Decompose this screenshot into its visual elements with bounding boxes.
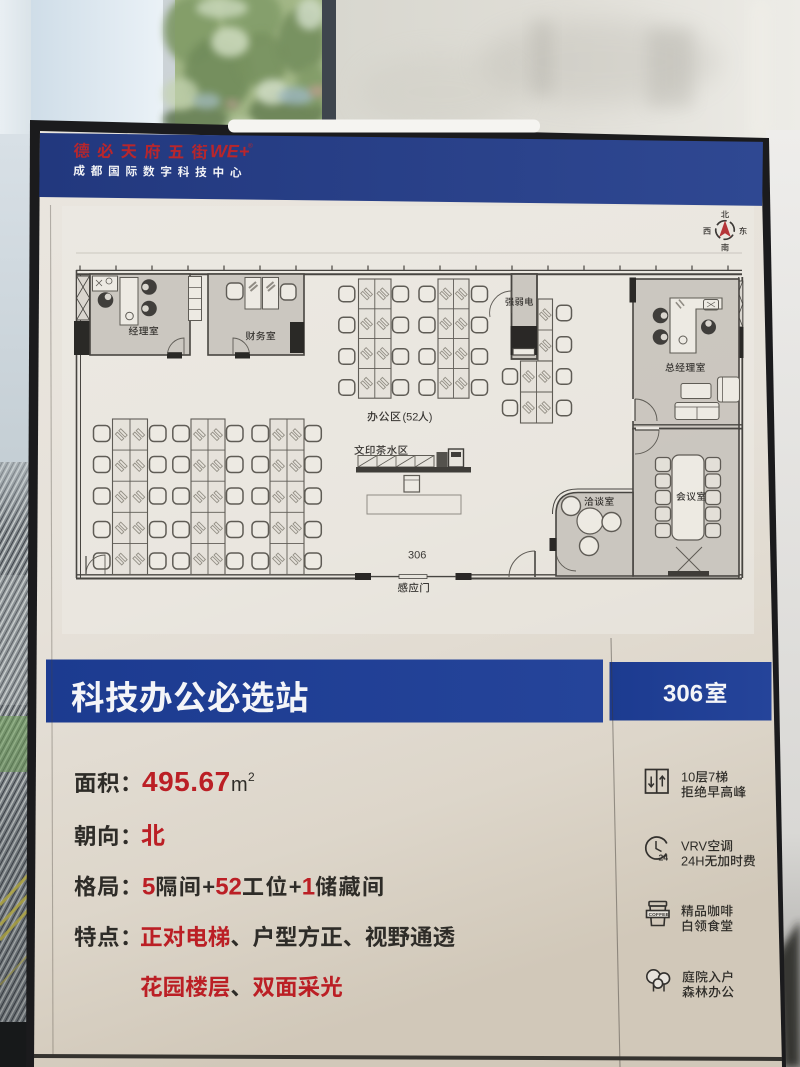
svg-text:+: +: [289, 875, 302, 900]
svg-text:WE+: WE+: [210, 141, 250, 161]
svg-text:(52: (52: [403, 412, 419, 424]
svg-text:1: 1: [302, 874, 315, 901]
svg-text:10: 10: [681, 770, 695, 785]
svg-text:m: m: [231, 774, 248, 796]
svg-text:): ): [429, 412, 433, 424]
svg-text:2: 2: [248, 770, 255, 784]
svg-text:VRV: VRV: [681, 839, 708, 854]
svg-text:7: 7: [708, 770, 715, 785]
svg-text:COFFEE: COFFEE: [649, 912, 669, 917]
svg-text:24H: 24H: [681, 854, 704, 869]
svg-text:5: 5: [142, 874, 155, 901]
svg-text:24: 24: [659, 853, 669, 863]
svg-text:52: 52: [215, 874, 242, 901]
svg-text:306: 306: [663, 681, 703, 708]
svg-text:495.67: 495.67: [142, 766, 231, 797]
svg-text:+: +: [202, 875, 215, 900]
svg-text:306: 306: [408, 550, 426, 562]
svg-text:®: ®: [248, 142, 253, 150]
